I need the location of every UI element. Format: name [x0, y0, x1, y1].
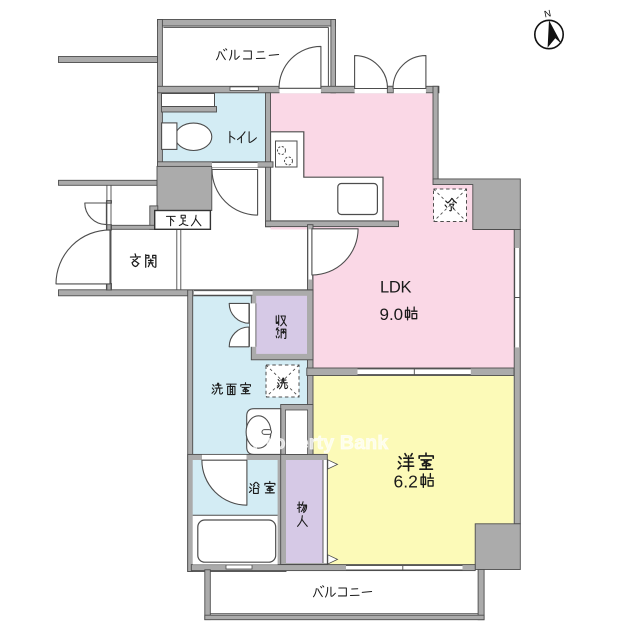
svg-text:9.0: 9.0 — [380, 305, 404, 324]
svg-text:LDK: LDK — [380, 278, 411, 296]
svg-text:Property Bank: Property Bank — [253, 432, 389, 454]
svg-text:6.2: 6.2 — [394, 472, 418, 492]
